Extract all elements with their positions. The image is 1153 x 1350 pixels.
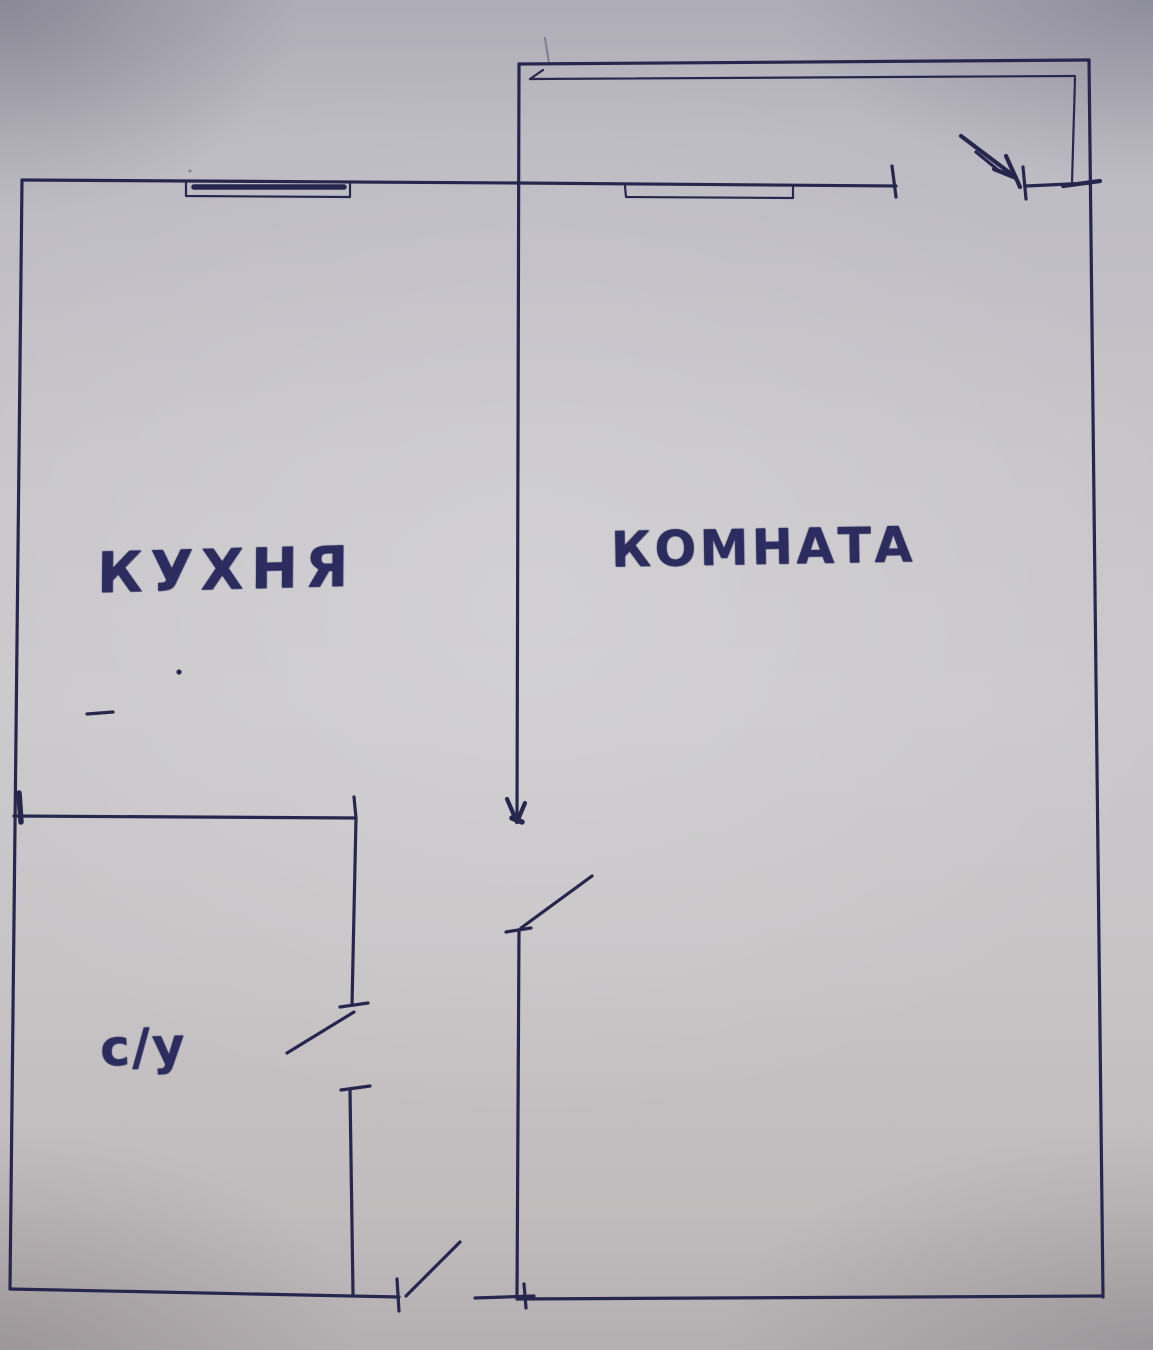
entry-jamb-right-tick xyxy=(524,1284,526,1308)
floor-plan-drawing xyxy=(0,0,1153,1350)
kitchen-room-partition xyxy=(506,64,592,1297)
balcony-top-outer-line xyxy=(519,60,1089,64)
room-window xyxy=(625,186,793,198)
entry-arrow xyxy=(961,136,1020,187)
room-top-wall xyxy=(519,183,896,186)
balcony-column-inner-edge xyxy=(1072,78,1075,183)
bathroom-top-wall-right-jamb xyxy=(354,797,356,818)
bathroom-label: с/у xyxy=(99,1017,187,1078)
partition-arrow-blob xyxy=(512,818,522,822)
ink-smudge xyxy=(545,38,549,63)
bathroom-top-wall-left-overdraw xyxy=(19,793,21,822)
kitchen-label: КУХНЯ xyxy=(97,535,356,607)
balcony-door-jamb-tick xyxy=(1023,167,1026,199)
partition-lower xyxy=(517,931,519,1297)
bathroom-top-wall xyxy=(14,816,356,818)
room-window-jamb-tick xyxy=(892,166,896,197)
balcony-inner-line-hook xyxy=(530,70,543,79)
entry-jamb-left-tick xyxy=(397,1279,399,1311)
arrow-tip xyxy=(1016,178,1020,187)
room-bottom-wall xyxy=(517,1296,1103,1299)
ink-speck-dot xyxy=(176,669,181,674)
left-wall xyxy=(10,180,22,1289)
right-wall xyxy=(1089,60,1103,1297)
floor-plan-sketch: КУХНЯ КОМНАТА с/у xyxy=(0,0,1153,1350)
bathroom-right-wall-lower xyxy=(350,1090,353,1294)
partition-upper xyxy=(517,64,519,820)
kitchen-top-wall xyxy=(22,180,519,183)
bottom-wall-left xyxy=(10,1289,399,1297)
bathroom-lower-jamb-tick xyxy=(341,1086,370,1090)
ink-marks xyxy=(87,38,549,714)
entry-door-swing xyxy=(406,1242,460,1296)
ink-speck-tiny xyxy=(188,169,191,172)
room-door-swing xyxy=(521,876,592,928)
bathroom-right-wall-upper xyxy=(352,818,356,1005)
ink-speck-dash xyxy=(87,712,113,714)
living-room-label: КОМНАТА xyxy=(611,516,917,578)
bathroom-upper-jamb-tick xyxy=(340,1003,368,1007)
bathroom-walls xyxy=(14,793,370,1294)
outer-walls xyxy=(10,60,1103,1299)
bathroom-door-swing xyxy=(287,1012,354,1053)
entry-door xyxy=(397,1242,526,1311)
balcony-top-inner-line xyxy=(530,76,1075,79)
